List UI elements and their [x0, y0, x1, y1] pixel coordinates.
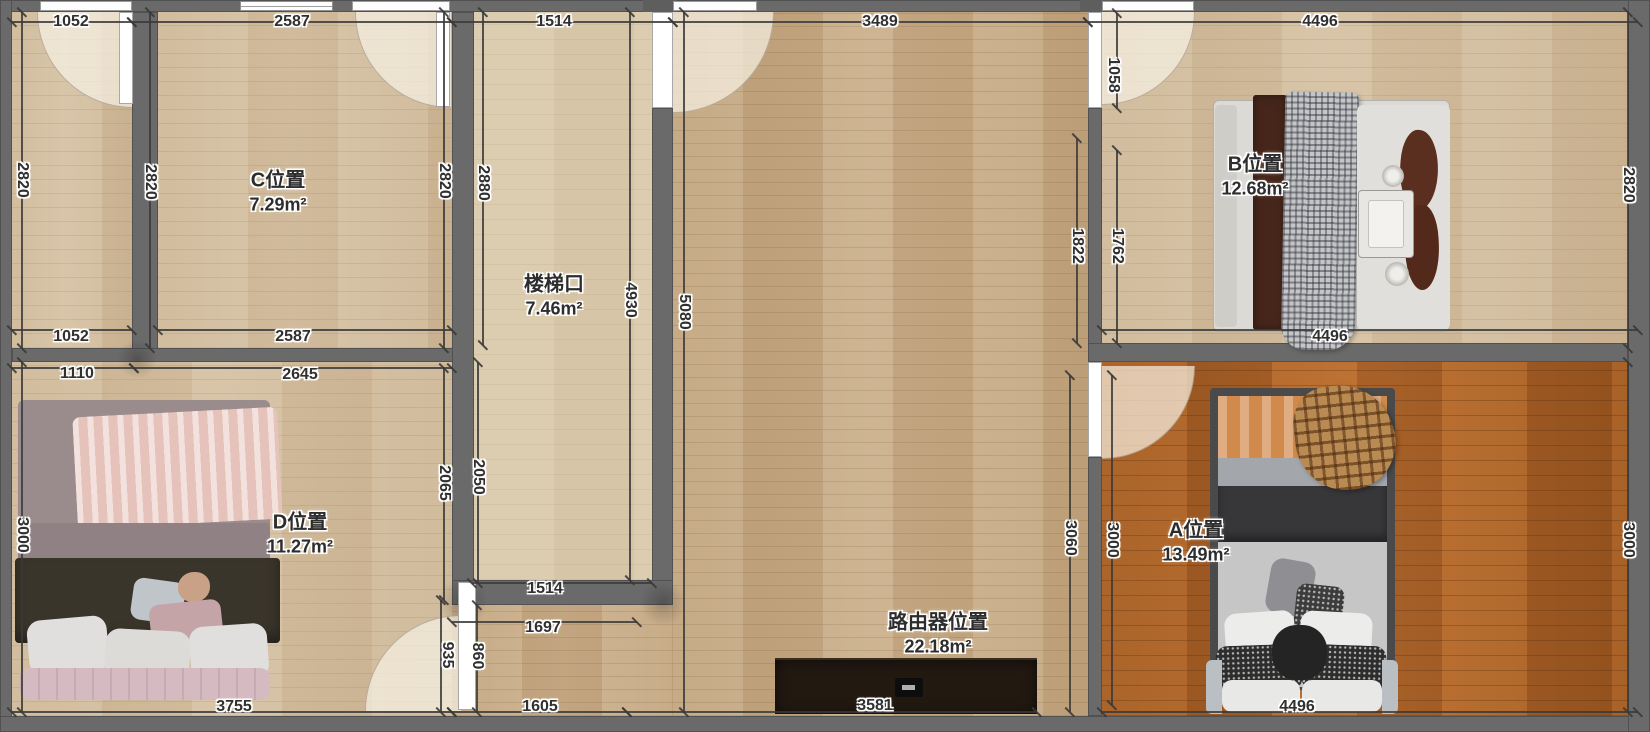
- dimension-label: 4496: [1312, 328, 1348, 346]
- dimension-label: 3489: [862, 13, 898, 31]
- entry-door-leaf[interactable]: [119, 12, 133, 104]
- bed-room-d[interactable]: [15, 395, 280, 705]
- room-name: 路由器位置: [888, 610, 988, 635]
- dimension-label: 3000: [13, 517, 31, 553]
- dimension-label: 1058: [1104, 57, 1122, 93]
- dimension-label: 5080: [675, 294, 693, 330]
- room-label-楼梯口[interactable]: 楼梯口7.46m²: [524, 272, 584, 320]
- room-label-B位置[interactable]: B位置12.68m²: [1221, 152, 1288, 200]
- floor-plan-canvas: 1052258715143489449628203000282028202880…: [0, 0, 1650, 732]
- wall-stairs-right: [652, 108, 673, 605]
- dimension-line: [1102, 329, 1638, 331]
- dimension-line: [683, 12, 685, 712]
- bed-room-b[interactable]: [1213, 92, 1450, 350]
- room-area: 11.27m²: [267, 535, 333, 558]
- room-area: 12.68m²: [1221, 177, 1288, 200]
- dimension-label: 2645: [282, 366, 318, 384]
- dimension-label: 3000: [1103, 522, 1121, 558]
- bed-d-footboard: [20, 668, 270, 700]
- hall-door-opening: [673, 1, 757, 11]
- dimension-label: 2065: [435, 465, 453, 501]
- dimension-line: [1102, 711, 1638, 713]
- room-area: 7.46m²: [524, 297, 584, 320]
- wall-hall-a: [1088, 457, 1102, 716]
- dimension-label: 1762: [1108, 228, 1126, 264]
- room-name: D位置: [267, 510, 333, 535]
- dimension-label: 2820: [435, 163, 453, 199]
- dimension-line: [1088, 21, 1638, 23]
- dimension-label: 3755: [216, 698, 252, 716]
- dimension-label: 2820: [141, 164, 159, 200]
- room-name: C位置: [249, 168, 306, 193]
- dimension-label: 4930: [621, 282, 639, 318]
- tv-cabinet[interactable]: [775, 658, 1037, 714]
- room-area: 7.29m²: [249, 193, 306, 216]
- bed-b-tray: [1358, 190, 1414, 258]
- room-label-路由器位置[interactable]: 路由器位置22.18m²: [888, 610, 988, 658]
- room-label-A位置[interactable]: A位置13.49m²: [1162, 518, 1229, 566]
- dimension-label: 2820: [13, 162, 31, 198]
- wall-bottom: [0, 716, 1650, 732]
- wall-hall-b: [1088, 108, 1102, 362]
- dimension-label: 2880: [474, 165, 492, 201]
- shadow-stairs-corner-right: [639, 580, 687, 626]
- dimension-label: 3000: [1619, 522, 1637, 558]
- room-name: B位置: [1221, 152, 1288, 177]
- room-label-D位置[interactable]: D位置11.27m²: [267, 510, 333, 558]
- dimension-label: 1514: [527, 580, 563, 598]
- wall-stairs-left: [452, 12, 474, 605]
- bed-a-rail-right: [1382, 660, 1398, 714]
- pillar-hall-door: [643, 0, 677, 12]
- router[interactable]: [895, 678, 923, 697]
- dimension-label: 3581: [857, 697, 893, 715]
- hall-floor[interactable]: [673, 12, 1088, 716]
- bed-a-pillow-center-dark: [1272, 625, 1327, 680]
- bed-b-lace-doily-1: [1382, 165, 1404, 187]
- room-c-door-opening: [352, 1, 450, 11]
- wall-c-d-divider: [12, 348, 474, 362]
- dimension-label: 1052: [53, 328, 89, 346]
- room-area: 13.49m²: [1162, 543, 1229, 566]
- dimension-label: 860: [468, 643, 486, 670]
- dimension-label: 1110: [60, 365, 94, 383]
- bed-d-quilt: [72, 407, 283, 530]
- bed-b-tray-cushion: [1368, 200, 1404, 248]
- dimension-label: 2587: [274, 13, 310, 31]
- room-label-C位置[interactable]: C位置7.29m²: [249, 168, 306, 216]
- bed-a-band-charcoal: [1218, 486, 1387, 542]
- bed-a-rail-left: [1206, 660, 1222, 714]
- dimension-label: 2587: [275, 328, 311, 346]
- bed-d-plush-toy: [178, 572, 210, 602]
- room-b-door-leaf[interactable]: [1088, 12, 1102, 108]
- room-name: A位置: [1162, 518, 1229, 543]
- dimension-label: 3060: [1061, 520, 1079, 556]
- dimension-line: [627, 711, 1037, 713]
- router-label: [902, 685, 915, 690]
- bed-room-a[interactable]: [1206, 385, 1398, 715]
- dimension-label: 2820: [1619, 167, 1637, 203]
- dimension-label: 4496: [1302, 13, 1338, 31]
- room-area: 22.18m²: [888, 635, 988, 658]
- dimension-label: 4496: [1279, 698, 1315, 716]
- bed-b-lace-doily-2: [1385, 262, 1409, 286]
- dimension-label: 1514: [536, 13, 572, 31]
- dimension-label: 935: [438, 642, 456, 669]
- hall-door-leaf[interactable]: [652, 12, 673, 108]
- dimension-label: 1822: [1068, 228, 1086, 264]
- dimension-label: 1605: [522, 698, 558, 716]
- dimension-label: 1052: [53, 13, 89, 31]
- room-c-window: [240, 1, 333, 11]
- bed-b-plaid-blanket: [1281, 91, 1359, 350]
- entry-door-opening: [40, 1, 132, 11]
- dimension-label: 1697: [525, 619, 561, 637]
- room-a-door-leaf[interactable]: [1088, 362, 1102, 457]
- room-name: 楼梯口: [524, 272, 584, 297]
- bed-b-fold-left: [1215, 105, 1237, 327]
- room-b-door-opening: [1102, 1, 1194, 11]
- dimension-label: 2050: [469, 459, 487, 495]
